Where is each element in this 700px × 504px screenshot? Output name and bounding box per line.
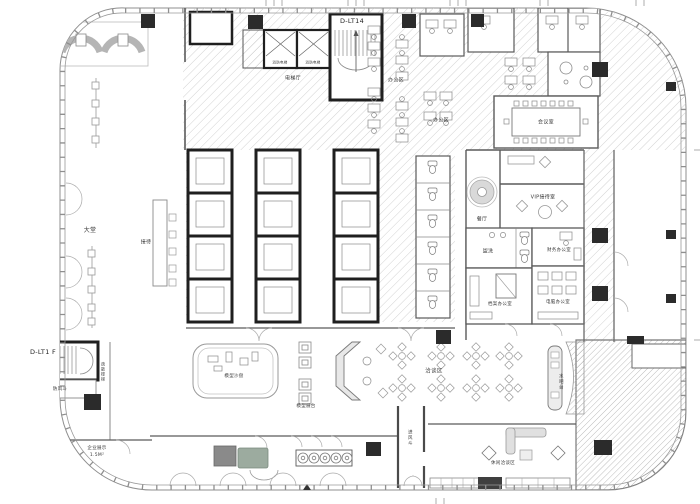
model-platform (193, 344, 278, 398)
washroom-room (466, 228, 532, 268)
green-mat (238, 448, 268, 468)
toilet-stalls (416, 156, 450, 318)
stair-d-lt1 (36, 342, 98, 380)
water-bar-counter (548, 346, 562, 410)
terrace-planter (632, 344, 686, 368)
finance-office-room (532, 228, 584, 266)
fire-elevators (264, 30, 330, 68)
round-feature (467, 177, 497, 207)
floor-plan-drawing (0, 0, 700, 504)
archive-office-room (466, 268, 532, 324)
floor-plan: D-LT14D-LT1 F大堂接待电梯厅办公区办公区会议室VIP接待室餐厅盥洗财… (0, 0, 700, 504)
computer-office-room (532, 266, 584, 324)
conference-room (494, 96, 598, 148)
duct-shaft (243, 30, 264, 68)
hatch-east-strip (584, 150, 614, 342)
elevator-core (188, 150, 378, 322)
stool-table (296, 450, 352, 466)
ahu-room (190, 12, 232, 44)
